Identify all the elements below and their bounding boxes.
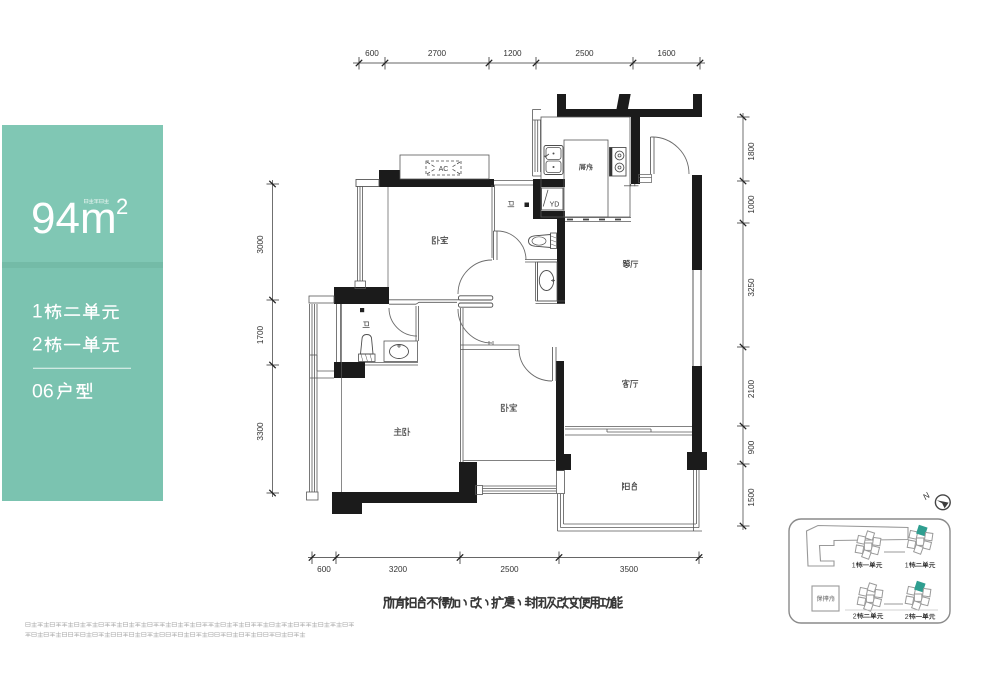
svg-text:900: 900 <box>747 440 756 454</box>
svg-text:600: 600 <box>317 565 331 574</box>
svg-text:YD: YD <box>550 202 560 209</box>
svg-text:N: N <box>921 490 933 502</box>
svg-text:1800: 1800 <box>747 142 756 161</box>
svg-text:1: 1 <box>905 562 909 569</box>
svg-text:2: 2 <box>905 614 909 621</box>
svg-text:AC: AC <box>439 166 449 173</box>
svg-text:2700: 2700 <box>428 49 447 58</box>
svg-text:1700: 1700 <box>256 325 265 344</box>
svg-text:2: 2 <box>853 613 857 620</box>
svg-text:2100: 2100 <box>747 379 756 398</box>
svg-text:2: 2 <box>116 194 128 219</box>
svg-text:3000: 3000 <box>256 235 265 254</box>
svg-text:06: 06 <box>32 381 54 403</box>
svg-text:3200: 3200 <box>389 565 408 574</box>
svg-text:600: 600 <box>365 49 379 58</box>
svg-text:2: 2 <box>32 335 43 356</box>
svg-text:1600: 1600 <box>657 49 676 58</box>
svg-text:3250: 3250 <box>747 278 756 297</box>
svg-text:1: 1 <box>32 302 43 323</box>
svg-text:1500: 1500 <box>747 488 756 507</box>
svg-text:1200: 1200 <box>503 49 522 58</box>
svg-text:1000: 1000 <box>747 195 756 214</box>
svg-text:3500: 3500 <box>620 565 639 574</box>
svg-text:94m: 94m <box>31 194 117 243</box>
svg-text:1: 1 <box>852 562 856 569</box>
svg-text:3300: 3300 <box>256 422 265 441</box>
svg-text:2500: 2500 <box>500 565 519 574</box>
svg-text:2500: 2500 <box>575 49 594 58</box>
